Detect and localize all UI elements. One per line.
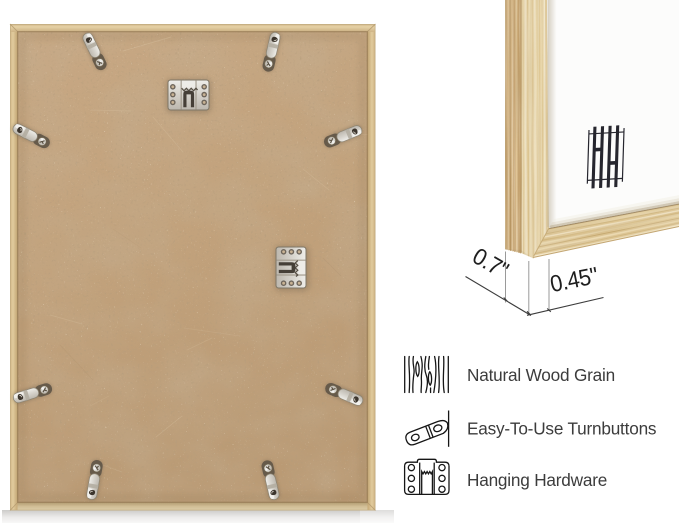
svg-text:Easy-To-Use Turnbuttons: Easy-To-Use Turnbuttons (467, 419, 656, 439)
svg-text:0.45": 0.45" (548, 261, 601, 297)
svg-text:Natural Wood Grain: Natural Wood Grain (467, 365, 615, 385)
svg-text:Hanging Hardware: Hanging Hardware (467, 470, 607, 490)
